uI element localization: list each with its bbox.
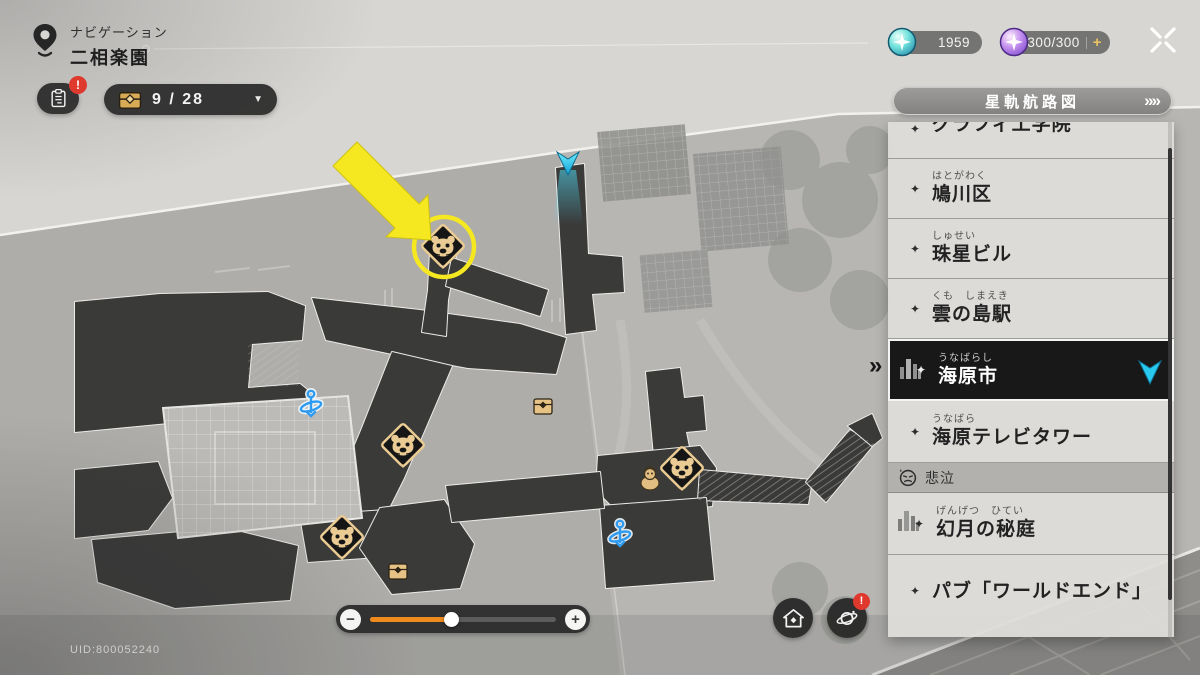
zoom-out-button[interactable]: − [340, 609, 361, 630]
item-name: 海原テレビタワー [932, 426, 1174, 449]
location-item-pub-worldend[interactable]: ✦ パブ「ワールドエンド」 [888, 555, 1174, 627]
star-icon: ✦ [916, 363, 926, 377]
chest-counter-value: 9 / 28 [152, 91, 204, 109]
star-icon: ✦ [910, 584, 920, 598]
zoom-track[interactable] [370, 617, 556, 622]
star-icon: ✦ [910, 182, 920, 196]
clipboard-icon [49, 88, 68, 109]
area-name: 二相楽園 [70, 44, 168, 70]
close-button[interactable] [1141, 22, 1185, 60]
star-icon: ✦ [910, 425, 920, 439]
trailblaze-power-value: 1959 [938, 35, 970, 50]
location-item-cloud-island-station[interactable]: ✦ くも しまえき 雲の島駅 [888, 279, 1174, 339]
reserved-power-counter[interactable]: 300/300 + [1000, 31, 1110, 54]
recenter-home-button[interactable] [773, 598, 813, 638]
zoom-in-button[interactable]: + [565, 609, 586, 630]
item-furigana: うなばらし [938, 353, 1172, 365]
item-furigana: しゅせい [932, 231, 1174, 243]
chest-counter-dropdown[interactable]: 9 / 28 ▼ [104, 84, 277, 115]
item-furigana: くも しまえき [932, 291, 1174, 303]
item-name: 珠星ビル [932, 243, 1174, 266]
zoom-fill [370, 617, 451, 622]
item-name: 雲の島駅 [932, 303, 1174, 326]
item-furigana: はとがわく [932, 171, 1174, 183]
treasure-chest-icon [118, 90, 142, 110]
location-item-unabara-tv-tower[interactable]: ✦ うなばら 海原テレビタワー [888, 401, 1174, 463]
quest-tracker-button[interactable]: ! [37, 83, 79, 114]
teal-orb-icon [886, 26, 918, 58]
location-item-shusei-building[interactable]: ✦ しゅせい 珠星ビル [888, 219, 1174, 279]
alert-badge: ! [69, 76, 87, 94]
item-name: 幻月の秘庭 [936, 518, 1174, 541]
nav-header: ナビゲーション 二相楽園 [30, 22, 168, 70]
item-name: 鳩川区 [932, 183, 1174, 206]
location-item-unabara-city-selected[interactable]: ✦ うなばらし 海原市 [888, 339, 1174, 401]
location-item-genngetsu-garden[interactable]: ✦ げんげつ ひてい 幻月の秘庭 [888, 493, 1174, 555]
location-list: ✦ グラフィ工学院 ✦ はとがわく 鳩川区 ✦ しゅせい 珠星ビル ✦ くも し… [888, 122, 1174, 637]
section-header-lament: 悲泣 [888, 463, 1174, 493]
star-icon: ✦ [910, 302, 920, 316]
item-name: 海原市 [938, 365, 1172, 388]
teleport-chevron-icon [1138, 359, 1162, 385]
map-screen: ナビゲーション 二相楽園 ! 9 / 28 ▼ 1959 [0, 0, 1200, 675]
zoom-slider[interactable]: − + [336, 605, 590, 633]
uid-label: UID:800052240 [70, 644, 160, 656]
item-furigana: げんげつ ひてい [936, 506, 1174, 518]
trailblaze-power-counter[interactable]: 1959 [888, 31, 982, 54]
location-item-hatogawa[interactable]: ✦ はとがわく 鳩川区 [888, 159, 1174, 219]
home-icon [782, 607, 805, 630]
chevron-down-icon: ▼ [253, 94, 263, 105]
planet-icon [835, 606, 859, 630]
location-item-graphy-institute[interactable]: ✦ グラフィ工学院 [888, 122, 1174, 159]
star-icon: ✦ [910, 242, 920, 256]
item-name: グラフィ工学院 [932, 122, 1174, 136]
close-icon [1145, 24, 1181, 58]
reserved-power-value: 300/300 [1027, 35, 1079, 50]
nav-label: ナビゲーション [70, 22, 168, 41]
alert-badge: ! [853, 593, 870, 610]
starskiff-routes-button[interactable]: 星軌航路図 »» [893, 87, 1172, 115]
divider [1086, 37, 1087, 49]
chest-marker[interactable] [534, 399, 552, 414]
item-furigana: うなばら [932, 414, 1174, 426]
double-chevron-icon: »» [1144, 91, 1159, 111]
add-power-button[interactable]: + [1093, 34, 1102, 51]
location-pin-icon [30, 22, 60, 60]
zoom-handle[interactable] [444, 612, 459, 627]
crying-face-icon [898, 468, 917, 487]
sidebar-title: 星軌航路図 [985, 91, 1080, 112]
world-map-button[interactable]: ! [827, 598, 867, 638]
scrollbar-thumb[interactable] [1168, 148, 1172, 600]
chest-marker[interactable] [389, 564, 407, 579]
star-icon: ✦ [910, 122, 920, 136]
selected-pointer-icon: » [869, 354, 879, 378]
star-icon: ✦ [914, 517, 924, 531]
purple-orb-icon [998, 26, 1030, 58]
item-name: パブ「ワールドエンド」 [932, 580, 1174, 603]
section-label: 悲泣 [925, 468, 955, 488]
